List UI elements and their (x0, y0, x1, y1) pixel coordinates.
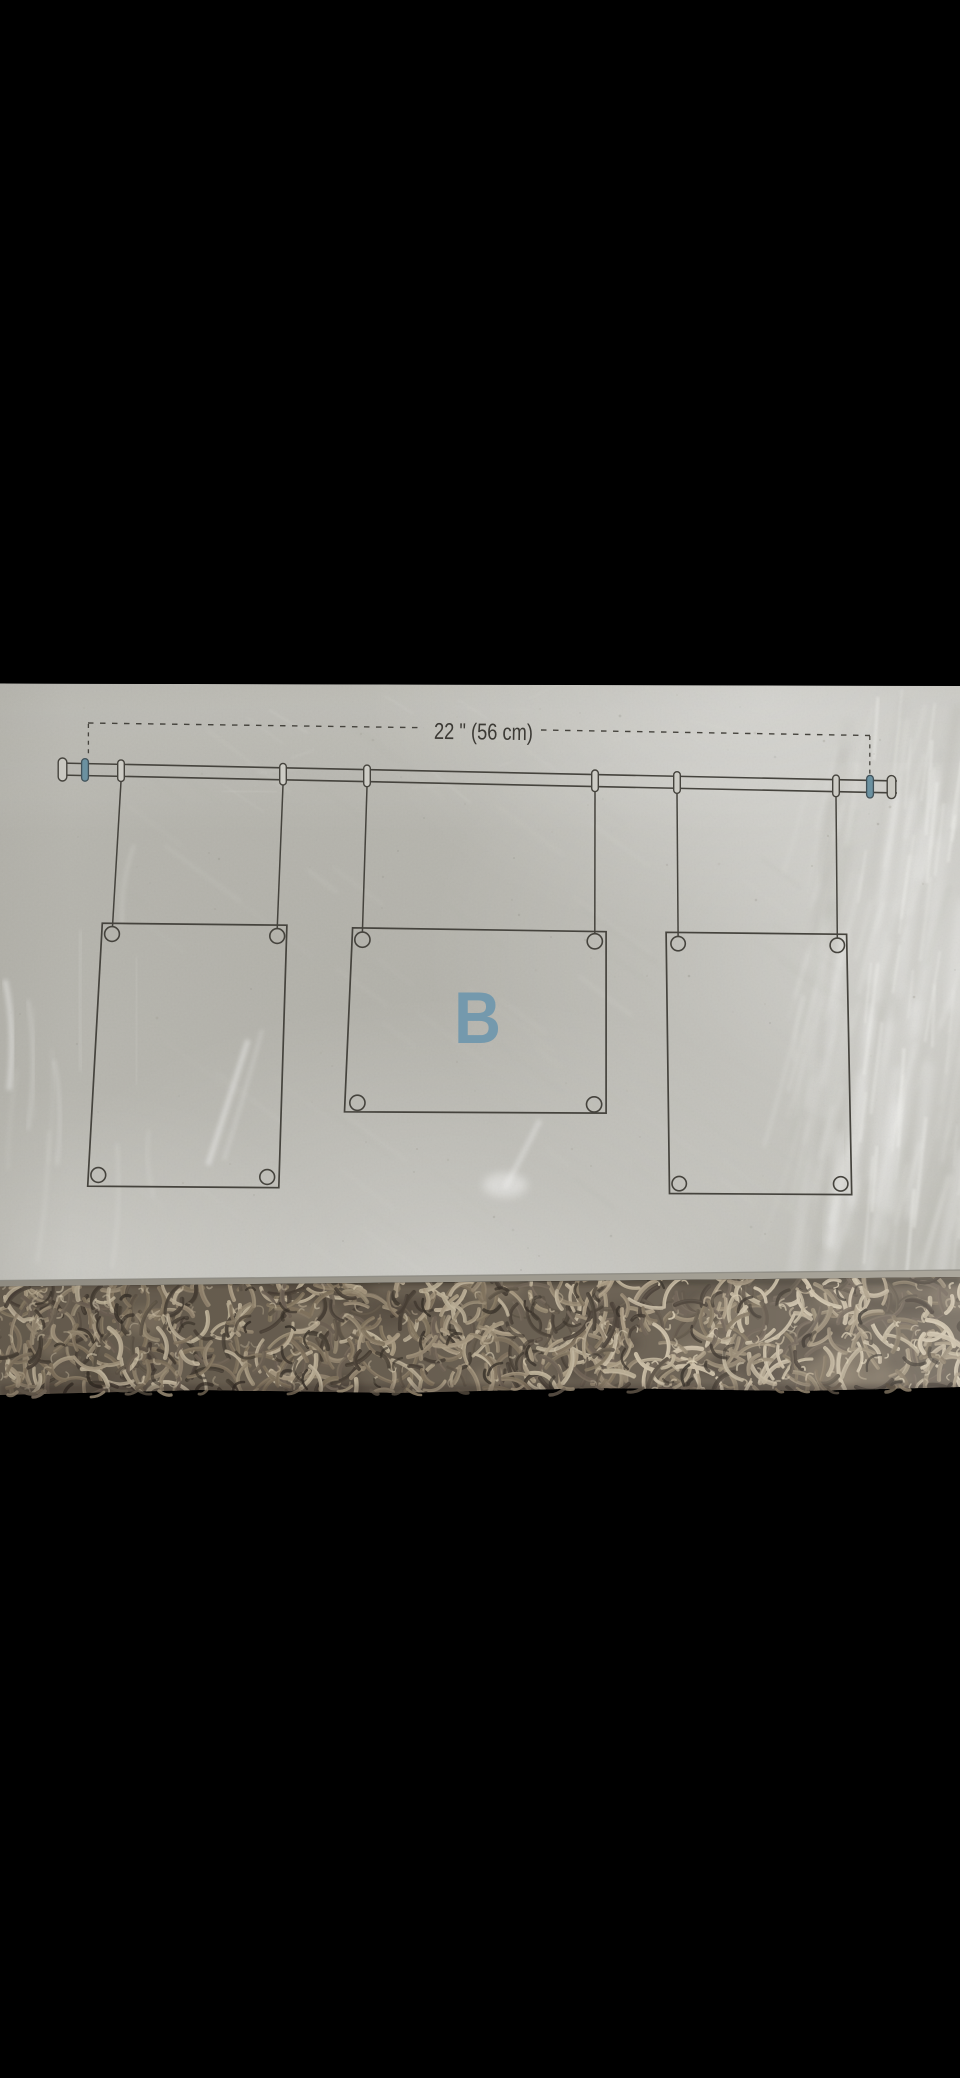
svg-text:22 " (56 cm): 22 " (56 cm) (434, 718, 533, 745)
svg-text:B: B (454, 978, 501, 1059)
